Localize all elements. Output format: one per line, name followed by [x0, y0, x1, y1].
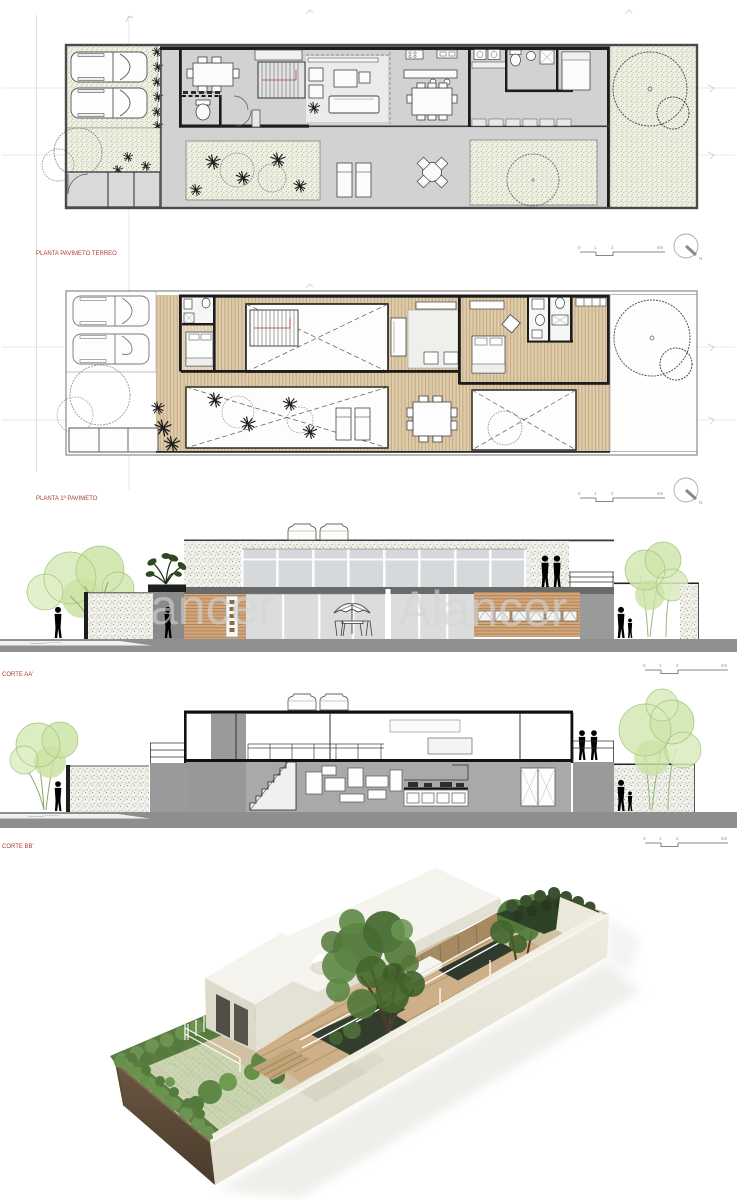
svg-text:5m: 5m [721, 663, 728, 668]
svg-text:2: 2 [676, 663, 679, 668]
svg-text:2: 2 [611, 491, 614, 496]
svg-text:5m: 5m [657, 245, 664, 250]
svg-text:PLANTA PAVIMETO TERREO: PLANTA PAVIMETO TERREO [36, 251, 117, 257]
svg-text:N: N [699, 500, 702, 505]
svg-text:1: 1 [594, 491, 597, 496]
svg-text:0: 0 [643, 836, 646, 841]
svg-text:2: 2 [611, 245, 614, 250]
svg-text:CORTE BB': CORTE BB' [2, 844, 34, 850]
svg-text:CORTE AA': CORTE AA' [2, 672, 33, 678]
svg-text:PLANTA 1º PAVIMETO: PLANTA 1º PAVIMETO [36, 495, 98, 502]
svg-text:5m: 5m [657, 491, 664, 496]
svg-text:1: 1 [594, 245, 597, 250]
svg-text:5m: 5m [721, 836, 728, 841]
svg-text:0: 0 [578, 245, 581, 250]
svg-text:ancer: ancer [150, 579, 275, 635]
svg-text:Alancer: Alancer [398, 581, 568, 637]
svg-text:1: 1 [659, 836, 662, 841]
svg-text:2: 2 [676, 836, 679, 841]
svg-text:1: 1 [659, 663, 662, 668]
svg-text:N: N [699, 256, 702, 261]
svg-text:0: 0 [643, 663, 646, 668]
svg-text:0: 0 [578, 491, 581, 496]
